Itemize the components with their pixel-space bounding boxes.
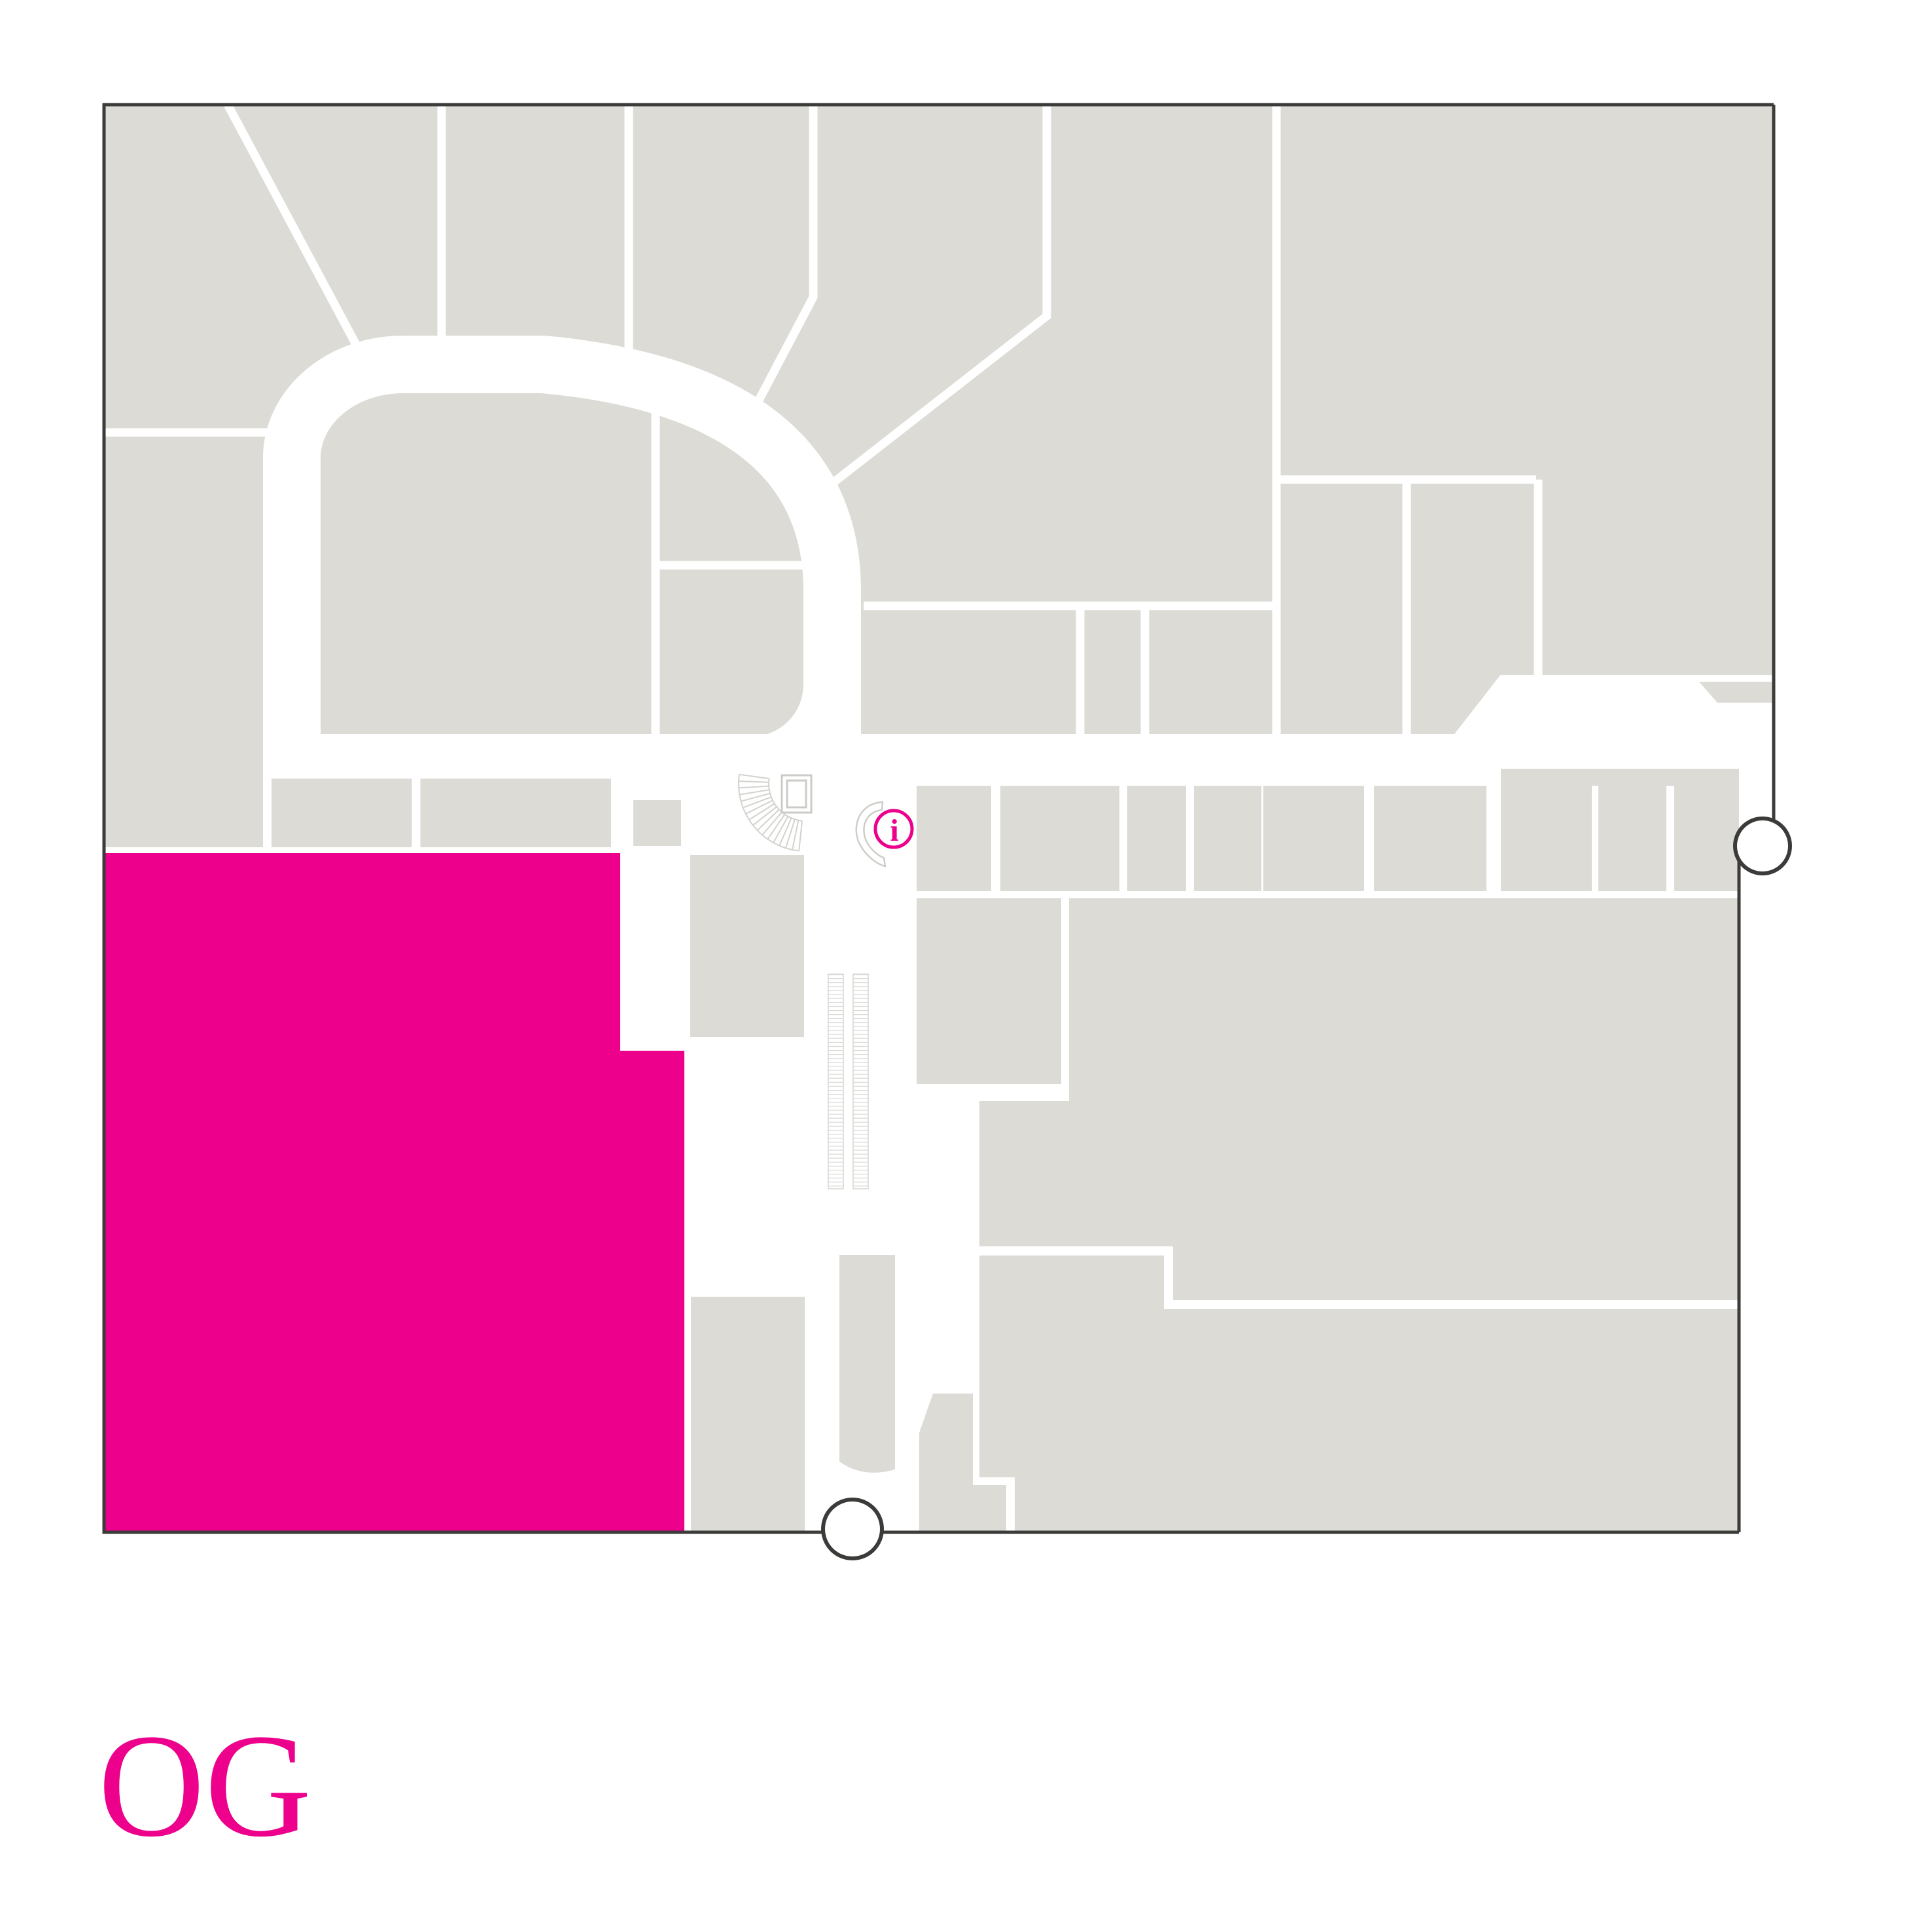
svg-text:i: i: [890, 813, 898, 848]
svg-text:OG: OG: [98, 1704, 311, 1867]
